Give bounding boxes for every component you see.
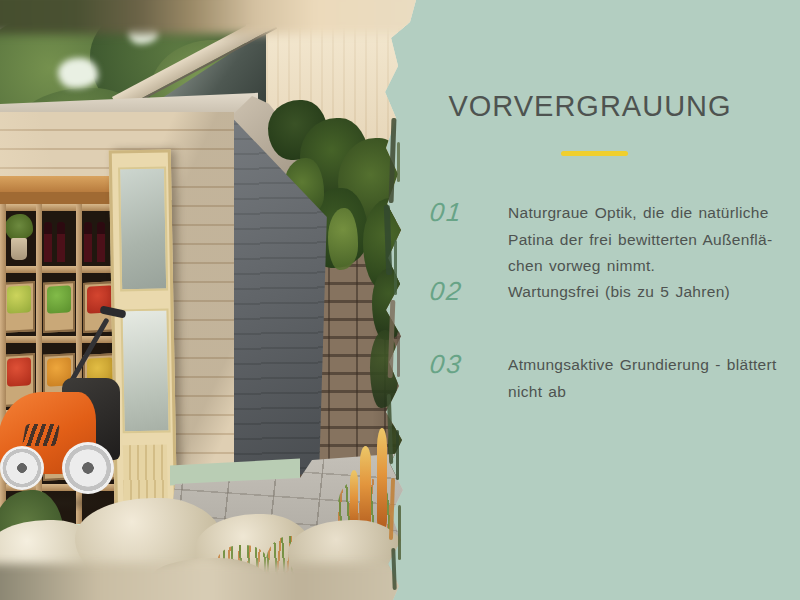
edge-brush-streak [397, 332, 400, 377]
wine-bottle [44, 222, 52, 262]
feature-item-3: 03 Atmungsaktive Grundierung - blättert … [430, 352, 792, 405]
edge-brush-streak [396, 430, 399, 480]
blur-strip-top [0, 0, 432, 34]
feature-text: Atmungsaktive Grundierung - blättert nic… [508, 352, 792, 405]
feature-number: 01 [428, 197, 464, 228]
feature-number: 03 [428, 349, 464, 380]
shelf-board [0, 336, 122, 343]
slide: VORVERGRAUUNG 01 Naturgraue Optik, die d… [0, 0, 800, 600]
bottlebrush-spike [360, 446, 371, 532]
feature-text: Naturgraue Optik, die die natürliche Pat… [508, 200, 792, 280]
edge-brush-streak [398, 505, 401, 560]
plant-pot [11, 238, 27, 260]
wine-bottle [84, 222, 92, 262]
mower-rear-wheel [62, 442, 114, 494]
sky-gap [58, 58, 98, 88]
feature-number: 02 [428, 276, 464, 307]
mower-front-wheel [0, 446, 44, 490]
page-title: VORVERGRAUUNG [420, 90, 760, 123]
feature-text: Wartungsfrei (bis zu 5 Jahren) [508, 279, 792, 306]
bottlebrush-spike [377, 428, 387, 530]
edge-brush-streak [397, 142, 400, 182]
door-glass-top [118, 167, 168, 292]
wine-bottle [57, 222, 65, 262]
door-glass-bottom [121, 309, 171, 434]
fern-sprig [328, 208, 358, 270]
produce-crate [3, 281, 35, 333]
shed-door [109, 149, 178, 524]
blur-strip-bottom [0, 564, 432, 600]
potted-plant-leaves [5, 214, 33, 240]
shelf-board [0, 204, 122, 211]
produce-crate [43, 281, 75, 333]
feature-item-2: 02 Wartungsfrei (bis zu 5 Jahren) [430, 279, 792, 306]
edge-brush-streak [394, 240, 397, 295]
mower-vents [22, 424, 60, 446]
feature-item-1: 01 Naturgraue Optik, die die natürliche … [430, 200, 792, 280]
wine-bottle [97, 222, 105, 262]
shelf-board [0, 266, 122, 273]
title-accent-dash [561, 151, 628, 156]
shed-photo [0, 0, 420, 600]
edge-brush-streak [391, 548, 396, 590]
